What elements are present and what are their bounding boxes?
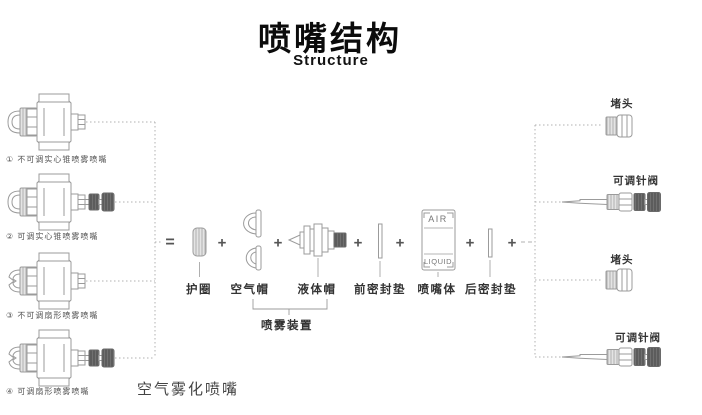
- spray-device-group-label: 喷雾装置: [261, 317, 313, 333]
- air-atomizing-nozzle-label: 空气雾化喷嘴: [137, 378, 239, 399]
- part-label-nozzle-body: 喷嘴体: [418, 281, 457, 297]
- part-retaining-ring-drawing: [193, 228, 206, 277]
- plus-sign-2: +: [274, 235, 283, 252]
- diagram-page: 喷嘴结构 Structure ① 不可调实心锥喷雾喷嘴 ② 可调实心锥喷雾喷嘴 …: [0, 0, 702, 415]
- right-part-label-needle-valve-2: 可调针阀: [615, 330, 661, 345]
- right-part-label-needle-valve-1: 可调针阀: [613, 173, 659, 188]
- part-rear-gasket-drawing: [489, 229, 493, 277]
- nozzle-label-2: ② 可调实心锥喷雾喷嘴: [6, 231, 98, 242]
- nozzle-assembly-4: [9, 330, 114, 386]
- nozzle-label-1: ① 不可调实心锥喷雾喷嘴: [6, 154, 107, 165]
- nozzle-assembly-3: [9, 253, 85, 309]
- part-label-retaining-ring: 护圈: [186, 281, 212, 297]
- nozzle-label-4: ④ 可调扇形喷雾喷嘴: [6, 386, 89, 397]
- part-liquid-cap-drawing: [289, 224, 346, 277]
- plus-sign-1: +: [218, 235, 227, 252]
- part-label-liquid-cap: 液体帽: [298, 281, 337, 297]
- right-part-label-plug-2: 堵头: [611, 252, 634, 267]
- right-part-label-plug-1: 堵头: [611, 96, 634, 111]
- part-front-gasket-drawing: [379, 224, 383, 277]
- spray-device-bracket: [253, 299, 327, 315]
- equals-sign: =: [165, 234, 174, 252]
- plug-drawing-2: [606, 269, 632, 291]
- plus-sign-5: +: [466, 235, 475, 252]
- right-bracket-lines: [521, 125, 603, 357]
- part-label-rear-gasket: 后密封垫: [465, 281, 517, 297]
- nozzle-body-marking-air: AIR: [428, 214, 448, 224]
- plus-sign-4: +: [396, 235, 405, 252]
- part-air-cap-drawing: [244, 210, 261, 270]
- nozzle-assembly-1: [8, 94, 85, 150]
- needle-valve-drawing-1: [562, 193, 661, 212]
- nozzle-assembly-2: [8, 174, 114, 230]
- plus-sign-6: +: [508, 235, 517, 252]
- plug-drawing-1: [606, 115, 632, 137]
- part-label-front-gasket: 前密封垫: [354, 281, 406, 297]
- needle-valve-drawing-2: [562, 348, 661, 367]
- nozzle-body-marking-liquid: LIQUID: [424, 257, 452, 266]
- page-subtitle: Structure: [293, 52, 369, 69]
- nozzle-label-3: ③ 不可调扇形喷雾喷嘴: [6, 310, 98, 321]
- plus-sign-3: +: [354, 235, 363, 252]
- part-label-air-cap: 空气帽: [231, 281, 270, 297]
